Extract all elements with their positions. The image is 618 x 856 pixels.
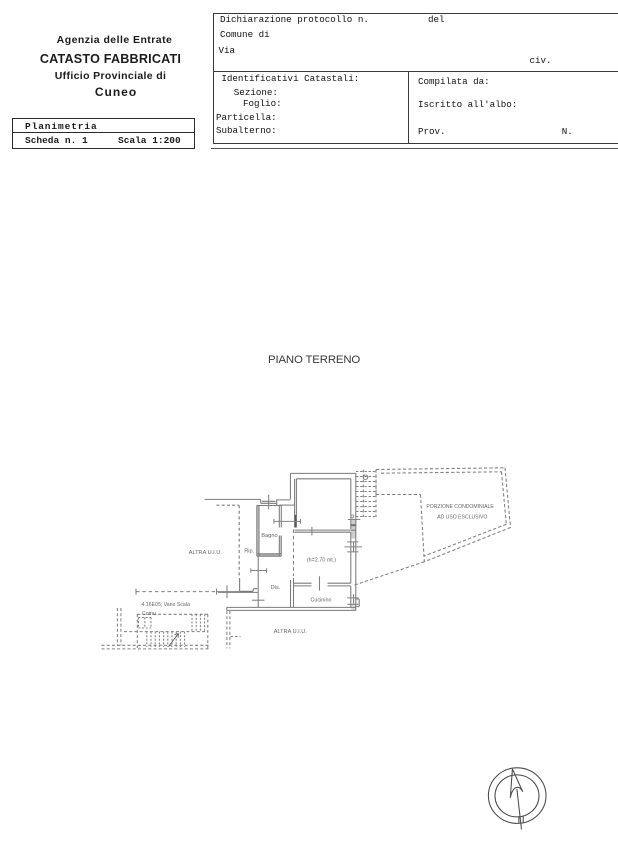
svg-text:AD USO ESCLUSIVO: AD USO ESCLUSIVO — [437, 515, 487, 521]
svg-text:Cucinino: Cucinino — [311, 598, 332, 604]
svg-text:ALTRA U.I.U.: ALTRA U.I.U. — [274, 629, 308, 635]
svg-text:PORZIONE CONDOMINIALE: PORZIONE CONDOMINIALE — [426, 504, 494, 510]
svg-text:Bagno: Bagno — [261, 533, 277, 539]
svg-text:(h=2.70 mt.): (h=2.70 mt.) — [307, 558, 336, 564]
svg-text:Dis.: Dis. — [271, 585, 281, 591]
svg-text:4.16E05; Vano Scala: 4.16E05; Vano Scala — [142, 602, 190, 608]
svg-text:Rip.: Rip. — [244, 549, 254, 555]
svg-text:ALTRA U.I.U.: ALTRA U.I.U. — [189, 550, 223, 556]
svg-text:Comu.: Comu. — [142, 611, 157, 617]
